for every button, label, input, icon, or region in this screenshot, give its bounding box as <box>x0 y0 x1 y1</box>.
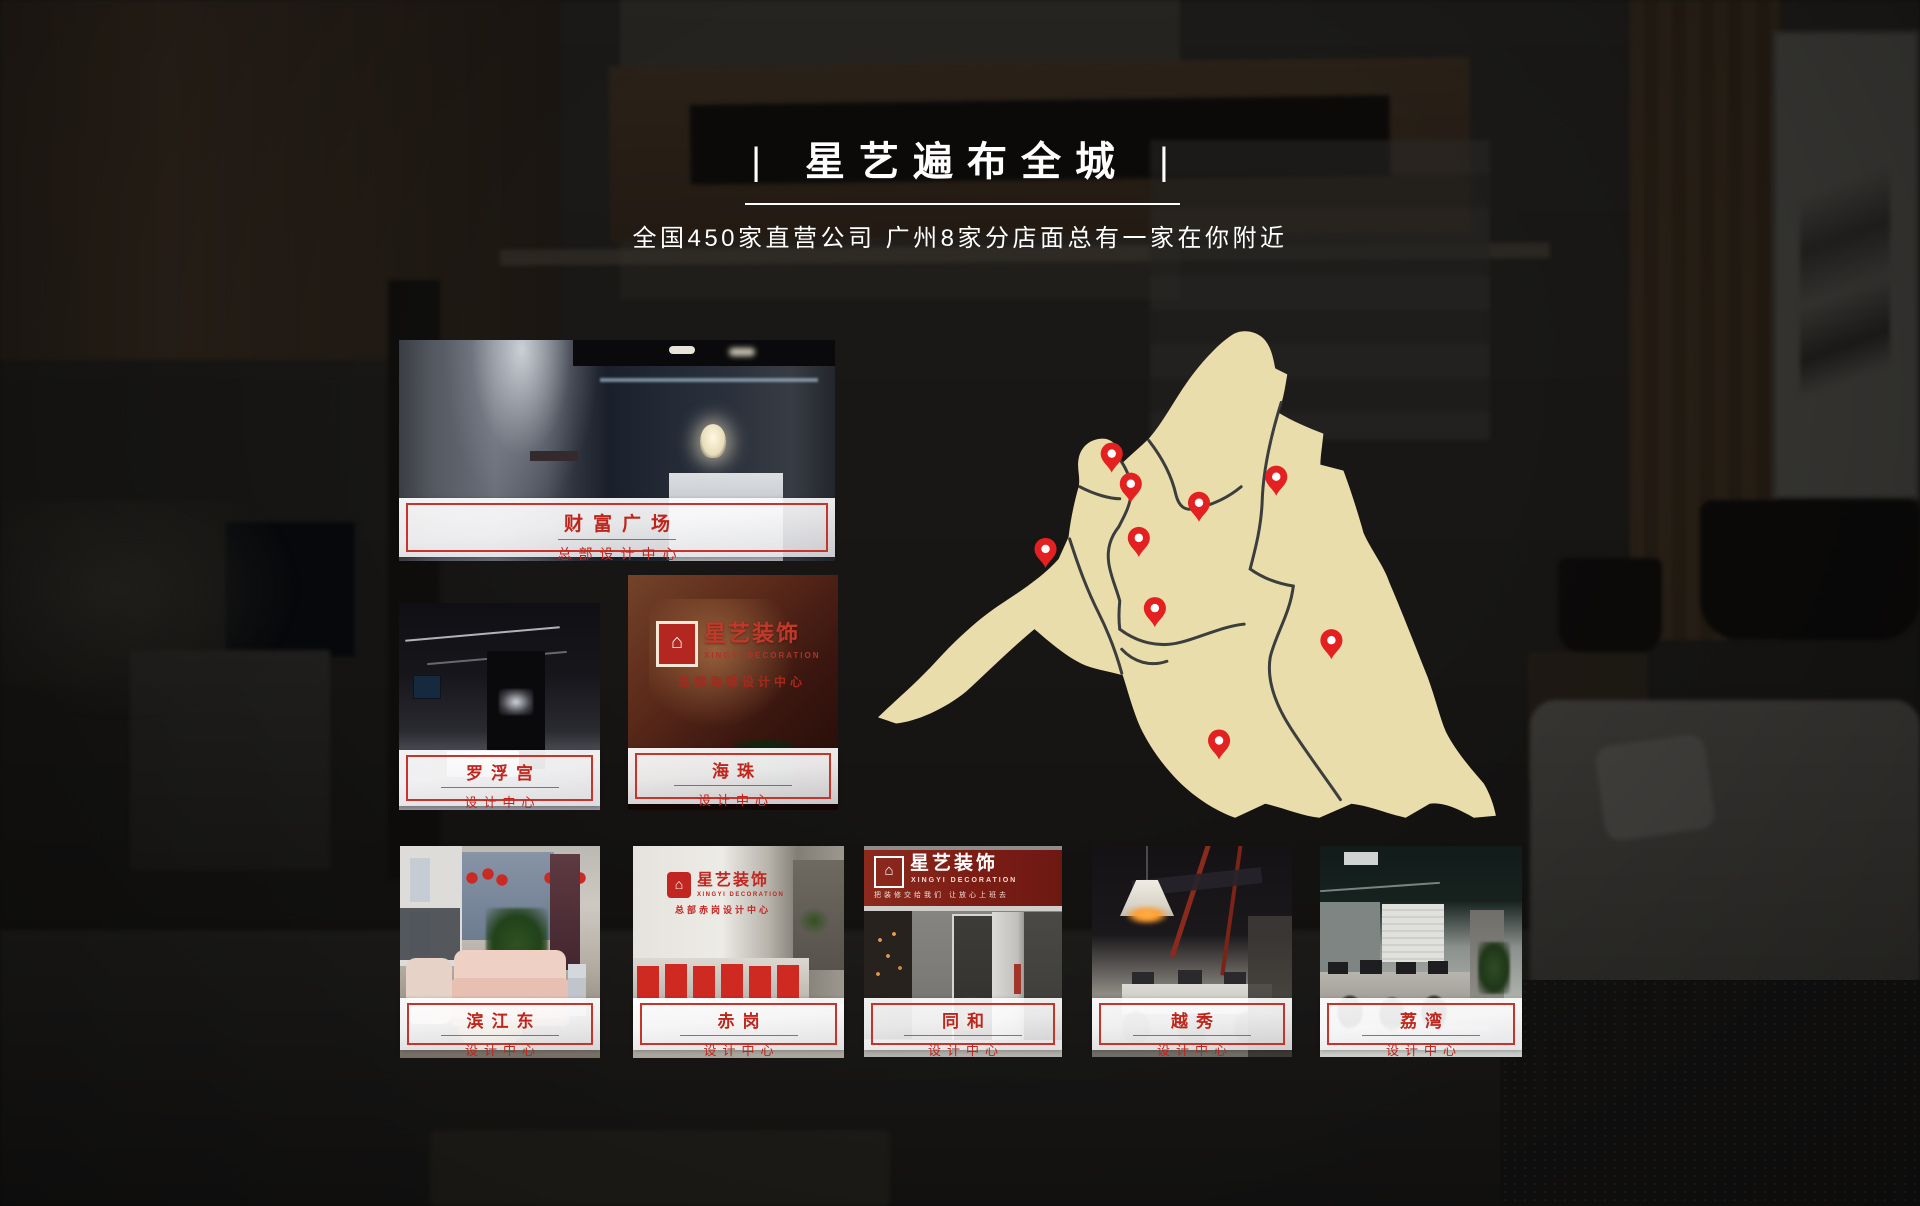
store-label: 财富广场 总部设计中心 <box>399 498 835 557</box>
desk-dark <box>400 908 460 960</box>
xingyi-logo-icon <box>874 856 904 888</box>
wall-poster <box>410 858 430 902</box>
xingyi-logo-icon <box>667 872 691 898</box>
label-divider <box>680 1035 798 1036</box>
store-card-liwan[interactable]: 荔湾 设计中心 <box>1320 846 1522 1057</box>
store-name: 罗浮宫 <box>399 759 600 784</box>
section-title-row: | 星艺遍布全城 | <box>0 140 1920 184</box>
ceiling-strip <box>573 340 835 366</box>
plant-right <box>1478 942 1510 994</box>
store-type: 设计中心 <box>1320 1040 1522 1059</box>
store-type: 设计中心 <box>864 1040 1062 1059</box>
chigang-brand-cn: 星艺装饰 <box>697 873 769 889</box>
guangzhou-map <box>872 330 1524 822</box>
store-card-caifu-plaza[interactable]: 财富广场 总部设计中心 <box>399 340 835 561</box>
store-label: 越秀 设计中心 <box>1092 998 1292 1050</box>
location-pin <box>1034 538 1056 568</box>
haizhu-sub-text: 总部海珠设计中心 <box>678 673 806 690</box>
tonghe-brand-cn: 星艺装饰 <box>910 854 998 873</box>
ceiling-spotlight <box>669 346 695 354</box>
store-name: 海珠 <box>628 757 838 782</box>
white-blinds <box>1382 904 1444 962</box>
tree-lights <box>870 926 908 986</box>
store-label: 滨江东 设计中心 <box>400 998 600 1050</box>
store-label: 罗浮宫 设计中心 <box>399 750 600 806</box>
red-side-sign <box>1014 964 1021 994</box>
store-card-haizhu[interactable]: 星艺装饰 XINGYI DECORATION 总部海珠设计中心 海珠 设计中心 <box>628 575 838 810</box>
haizhu-brand-en: XINGYI DECORATION <box>704 651 821 660</box>
monolith-logo-glow <box>499 689 533 715</box>
store-type: 设计中心 <box>399 792 600 811</box>
store-name: 赤岗 <box>633 1007 844 1032</box>
label-divider <box>441 1035 559 1036</box>
red-chandelier-1 <box>464 868 508 898</box>
store-name: 同和 <box>864 1007 1062 1032</box>
store-type: 设计中心 <box>628 790 838 809</box>
store-card-chigang[interactable]: 星艺装饰 XINGYI DECORATION 总部赤岗设计中心 赤岗 设计中心 <box>633 846 844 1058</box>
store-type: 设计中心 <box>1092 1040 1292 1059</box>
label-divider <box>674 785 792 786</box>
xingyi-logo-icon <box>656 621 698 667</box>
store-card-luofugong[interactable]: 罗浮宫 设计中心 <box>399 603 600 810</box>
page-title: 星艺遍布全城 <box>791 140 1129 184</box>
plant-dots <box>799 908 829 934</box>
label-divider <box>1362 1035 1480 1036</box>
store-type: 设计中心 <box>633 1040 844 1059</box>
store-label: 赤岗 设计中心 <box>633 998 844 1050</box>
chigang-brand-en: XINGYI DECORATION <box>697 892 784 898</box>
ceiling-vent <box>1344 852 1378 865</box>
store-name: 财富广场 <box>399 509 835 536</box>
store-name: 滨江东 <box>400 1007 600 1032</box>
haizhu-brand-cn: 星艺装饰 <box>704 623 800 645</box>
desk-monitors <box>1132 970 1252 986</box>
store-name: 荔湾 <box>1320 1007 1522 1032</box>
wall-tv <box>413 675 441 699</box>
title-pipe-right: | <box>1159 143 1169 181</box>
title-pipe-left: | <box>751 143 761 181</box>
glass-light-line <box>600 378 818 382</box>
store-card-yuexiu[interactable]: 越秀 设计中心 <box>1092 846 1292 1057</box>
tonghe-brand-en: XINGYI DECORATION <box>911 877 1017 884</box>
store-name: 越秀 <box>1092 1007 1292 1032</box>
pendant-cable <box>1146 846 1148 882</box>
chigang-sub-text: 总部赤岗设计中心 <box>675 903 771 916</box>
label-divider <box>441 787 559 788</box>
label-divider <box>904 1035 1022 1036</box>
store-card-tonghe[interactable]: 星艺装饰 XINGYI DECORATION 把装修交给我们 让放心上班去 同和… <box>864 846 1062 1057</box>
store-card-binjiangdong[interactable]: 滨江东 设计中心 <box>400 846 600 1058</box>
lamp-glow <box>1126 906 1168 924</box>
store-label: 海珠 设计中心 <box>628 748 838 804</box>
map-outline <box>878 331 1496 818</box>
spotlight-glow <box>443 340 600 517</box>
page-subtitle: 全国450家直营公司 广州8家分店面总有一家在你附近 <box>0 218 1920 253</box>
title-underline <box>745 203 1180 205</box>
tonghe-slogan: 把装修交给我们 让放心上班去 <box>874 890 1009 900</box>
desk-monitors <box>1324 960 1464 976</box>
store-type: 设计中心 <box>400 1040 600 1059</box>
label-divider <box>1133 1035 1251 1036</box>
counter-lamp <box>700 424 726 458</box>
label-divider <box>558 539 676 540</box>
wall-logo-strip <box>530 451 578 461</box>
store-type: 总部设计中心 <box>399 544 835 564</box>
store-label: 荔湾 设计中心 <box>1320 998 1522 1050</box>
store-label: 同和 设计中心 <box>864 998 1062 1050</box>
